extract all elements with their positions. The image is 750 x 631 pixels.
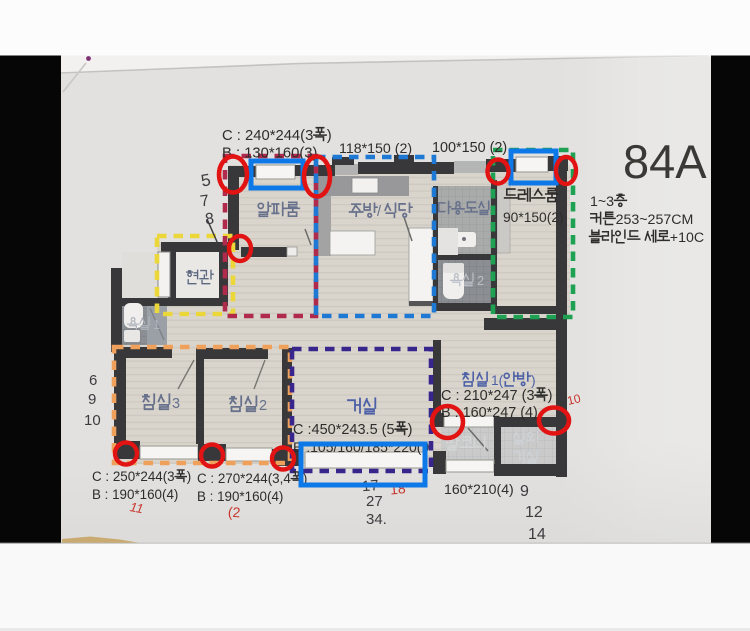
- svg-text:11: 11: [129, 499, 145, 516]
- svg-text:84A: 84A: [623, 135, 707, 188]
- svg-text:1(: 1(: [491, 373, 504, 388]
- svg-text:2: 2: [259, 398, 267, 414]
- svg-text:100*150 (2): 100*150 (2): [432, 140, 507, 156]
- svg-text:6: 6: [89, 372, 97, 389]
- svg-text:14: 14: [528, 526, 546, 543]
- svg-text:B :105/160/185*220(9: B :105/160/185*220(9: [293, 439, 429, 455]
- svg-text:2: 2: [477, 273, 484, 288]
- svg-text:253~257CM: 253~257CM: [616, 212, 694, 228]
- svg-text:B : 190*160(4): B : 190*160(4): [197, 489, 283, 504]
- svg-text:C :450*243.5 (5: C :450*243.5 (5: [293, 422, 395, 438]
- svg-text:+10C: +10C: [670, 230, 704, 246]
- svg-text:): ): [327, 128, 332, 144]
- svg-text:34.: 34.: [366, 511, 387, 528]
- svg-text:27: 27: [366, 493, 383, 510]
- svg-text:C : 240*244(3: C : 240*244(3: [222, 128, 313, 144]
- svg-text:90*150(2): 90*150(2): [503, 210, 564, 225]
- svg-text:160*210(4): 160*210(4): [444, 481, 514, 497]
- svg-text:10: 10: [84, 412, 101, 429]
- svg-text:3: 3: [172, 396, 180, 412]
- svg-text:): ): [548, 388, 553, 404]
- svg-text:C : 270*244(3,4: C : 270*244(3,4: [197, 471, 291, 486]
- svg-text:): ): [187, 469, 191, 484]
- svg-text:9: 9: [88, 391, 96, 408]
- svg-text:(2: (2: [227, 504, 241, 521]
- svg-text:118*150 (2): 118*150 (2): [339, 141, 412, 157]
- svg-text:12: 12: [525, 504, 543, 521]
- svg-text:9: 9: [520, 483, 529, 500]
- svg-text:): ): [531, 373, 536, 388]
- svg-text:): ): [408, 422, 413, 438]
- svg-text:1~3: 1~3: [590, 194, 614, 210]
- svg-text:1: 1: [153, 318, 160, 332]
- svg-text:C : 210*247 (3: C : 210*247 (3: [441, 388, 535, 404]
- svg-text:C : 250*244(3: C : 250*244(3: [92, 469, 175, 484]
